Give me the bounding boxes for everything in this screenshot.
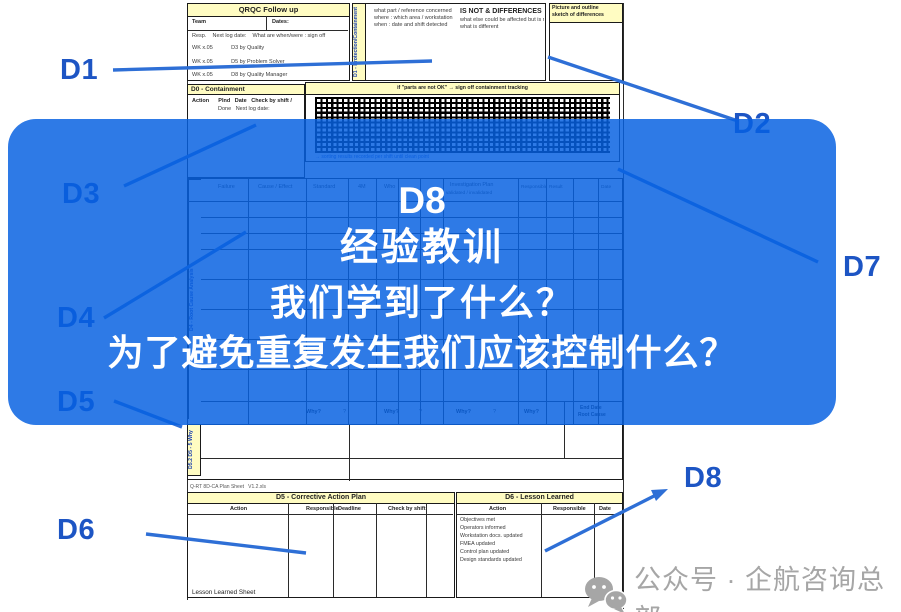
callout-d6: D6 — [57, 514, 95, 547]
callout-d8: D8 — [684, 462, 722, 495]
overlay-line1: 经验教训 — [8, 225, 836, 271]
watermark-text: 公众号 · 企航咨询总部 — [634, 558, 901, 612]
d8-overlay-callout: D8 经验教训 我们学到了什么？ 为了避免重复发生我们应该控制什么？ — [8, 119, 836, 425]
wechat-icon — [584, 575, 628, 612]
callout-d7: D7 — [843, 251, 881, 284]
overlay-line3: 为了避免重复发生我们应该控制什么？ — [8, 331, 836, 375]
d8-line — [545, 494, 658, 551]
d1-line — [113, 61, 432, 70]
slide: QRQC Follow up Team Dates: Resp. Next lo… — [0, 0, 901, 612]
overlay-heading: D8 — [8, 179, 836, 223]
overlay-line2: 我们学到了什么？ — [8, 281, 836, 325]
d2-line — [548, 57, 738, 121]
watermark: 公众号 · 企航咨询总部 — [584, 558, 901, 612]
callout-d1: D1 — [60, 54, 98, 87]
d8-arrowhead — [651, 489, 668, 501]
d6-line — [146, 534, 306, 553]
